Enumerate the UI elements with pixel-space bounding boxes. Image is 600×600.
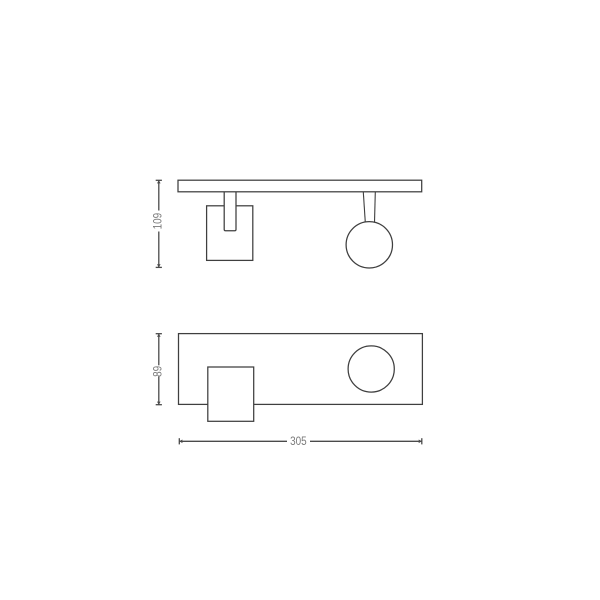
svg-text:89: 89 [152,366,165,377]
svg-text:305: 305 [290,435,307,448]
svg-text:109: 109 [152,213,165,230]
